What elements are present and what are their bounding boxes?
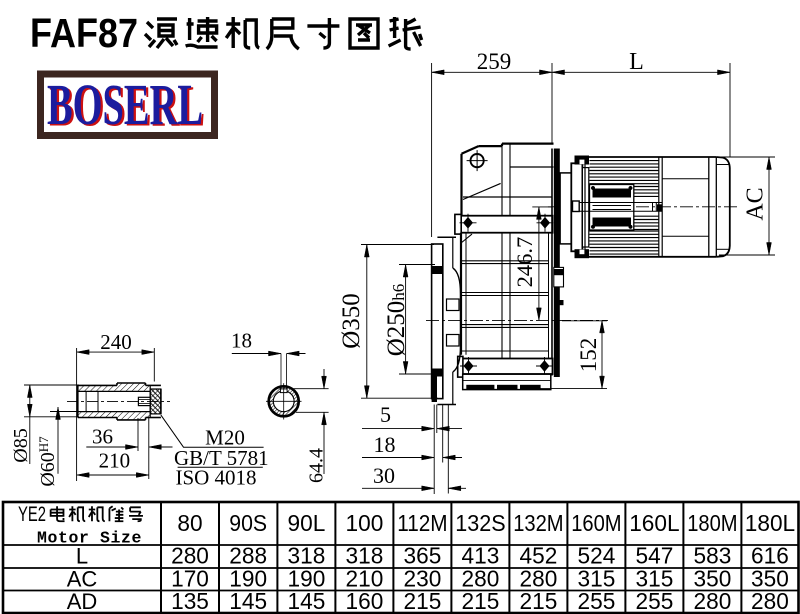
svg-text:215: 215: [404, 588, 442, 614]
svg-text:Ø250h6: Ø250h6: [383, 284, 410, 357]
svg-text:160L: 160L: [629, 510, 679, 536]
svg-text:210: 210: [99, 449, 131, 473]
svg-text:5: 5: [380, 402, 391, 427]
svg-text:145: 145: [229, 588, 267, 614]
svg-text:ISO 4018: ISO 4018: [175, 466, 256, 490]
svg-text:132S: 132S: [455, 510, 505, 536]
svg-text:Ø350: Ø350: [338, 293, 365, 349]
svg-text:112M: 112M: [397, 510, 447, 536]
svg-text:90S: 90S: [229, 510, 267, 536]
svg-text:280: 280: [694, 588, 732, 614]
svg-text:18: 18: [374, 432, 396, 457]
svg-text:246.7: 246.7: [512, 237, 537, 288]
svg-text:180L: 180L: [745, 510, 795, 536]
svg-text:215: 215: [462, 588, 500, 614]
svg-text:240: 240: [100, 330, 132, 354]
svg-text:255: 255: [578, 588, 616, 614]
svg-text:36: 36: [92, 425, 113, 449]
svg-text:AC: AC: [743, 187, 769, 220]
svg-text:255: 255: [636, 588, 674, 614]
svg-text:160M: 160M: [571, 510, 621, 536]
svg-text:AC: AC: [67, 567, 98, 592]
svg-text:259: 259: [477, 49, 512, 74]
svg-text:64.4: 64.4: [306, 448, 328, 483]
svg-text:152: 152: [576, 338, 601, 373]
svg-text:L: L: [629, 49, 644, 75]
svg-text:180M: 180M: [687, 510, 737, 536]
svg-text:YE2: YE2: [18, 503, 46, 526]
svg-text:132M: 132M: [513, 510, 563, 536]
svg-text:L: L: [76, 544, 88, 569]
svg-text:BOSERL: BOSERL: [47, 72, 203, 137]
svg-text:FAF87: FAF87: [30, 10, 138, 56]
svg-text:80: 80: [177, 510, 202, 536]
svg-text:AD: AD: [67, 589, 98, 614]
svg-text:215: 215: [520, 588, 558, 614]
svg-text:135: 135: [171, 588, 209, 614]
svg-text:160: 160: [346, 588, 384, 614]
svg-text:18: 18: [231, 329, 252, 353]
svg-text:Ø60H7: Ø60H7: [36, 436, 59, 487]
svg-text:100: 100: [346, 510, 384, 536]
svg-text:280: 280: [751, 588, 789, 614]
svg-text:145: 145: [288, 588, 326, 614]
svg-text:30: 30: [373, 463, 395, 488]
svg-text:90L: 90L: [288, 510, 326, 536]
svg-text:Motor Size: Motor Size: [37, 529, 142, 548]
svg-text:Ø85: Ø85: [10, 428, 32, 462]
